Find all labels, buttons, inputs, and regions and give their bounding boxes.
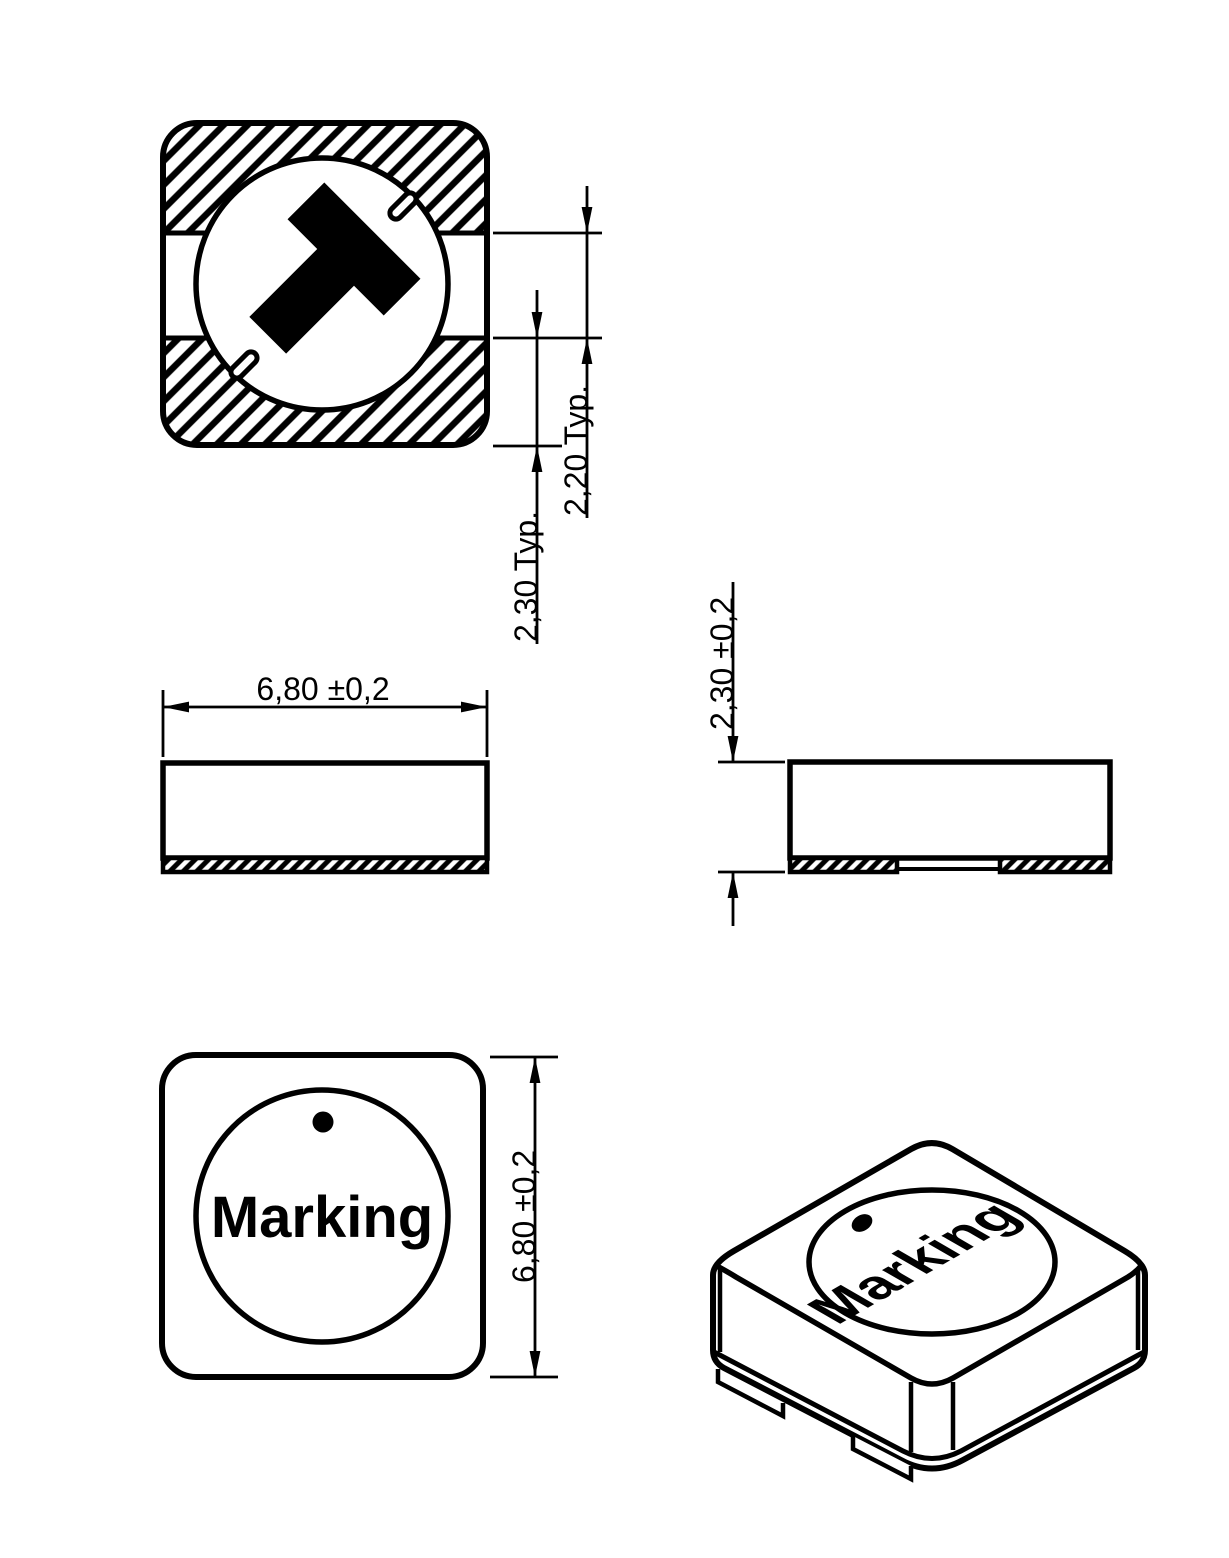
isometric-view: Marking [713, 1143, 1145, 1479]
terminal-strip-front [163, 858, 487, 872]
marking-label-top: Marking [211, 1185, 433, 1250]
arrowhead-up [728, 872, 739, 898]
front-view: 6,80 ±0,2 [163, 671, 487, 872]
arrowhead-down [728, 736, 739, 762]
terminal-strip-left [790, 858, 897, 872]
arrowhead-down [582, 207, 593, 233]
arrowhead-up [530, 1057, 541, 1083]
side-view: 2,30 ±0,2 [704, 582, 1110, 926]
arrowhead-down [530, 1351, 541, 1377]
arrowhead-up [582, 338, 593, 364]
body-outline-front-view [163, 763, 487, 858]
dim-body-depth: 6,80 ±0,2 [490, 1057, 558, 1377]
dim-body-width: 6,80 ±0,2 [163, 671, 487, 757]
technical-drawing-page: 2,20 Typ. 2,30 Typ. 6,80 ±0,2 [0, 0, 1229, 1558]
top-view: Marking 6,80 ±0,2 [162, 1055, 558, 1377]
dim-pad-gap: 2,20 Typ. [493, 186, 602, 518]
dim-label-body-depth: 6,80 ±0,2 [506, 1150, 542, 1283]
body-outline-side-view [790, 762, 1110, 858]
polarity-dot [313, 1112, 334, 1133]
bottom-view: 2,20 Typ. 2,30 Typ. [163, 123, 602, 644]
dim-label-body-height: 2,30 ±0,2 [704, 597, 740, 730]
arrowhead-up [532, 446, 543, 472]
arrowhead-left [163, 702, 189, 713]
dim-label-pad-gap: 2,20 Typ. [558, 385, 594, 516]
arrowhead-right [461, 702, 487, 713]
dim-pad-height: 2,30 Typ. [493, 290, 562, 644]
dim-label-pad-height: 2,30 Typ. [508, 511, 544, 642]
terminal-strip-right [1000, 858, 1110, 872]
arrowhead-down [532, 312, 543, 338]
dim-body-height: 2,30 ±0,2 [704, 582, 785, 926]
dim-label-body-width: 6,80 ±0,2 [256, 671, 389, 707]
drawing-canvas: 2,20 Typ. 2,30 Typ. 6,80 ±0,2 [0, 0, 1229, 1558]
